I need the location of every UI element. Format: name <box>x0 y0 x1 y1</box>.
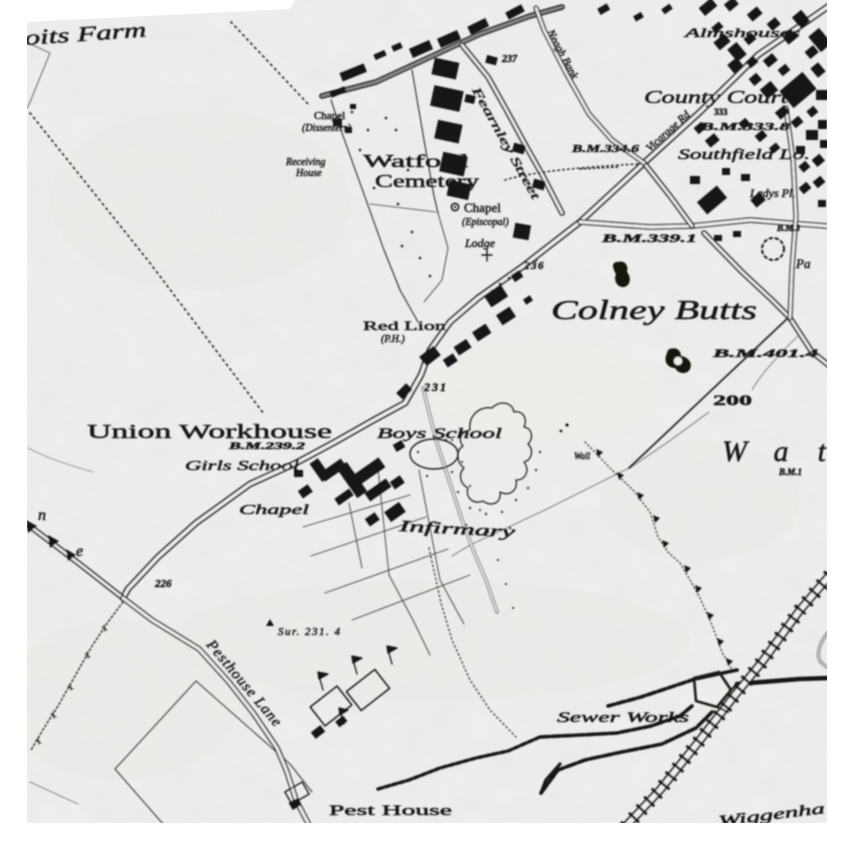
svg-text:226: 226 <box>154 578 172 590</box>
svg-text:(Episcopal): (Episcopal) <box>462 217 509 228</box>
svg-text:Lodge: Lodge <box>464 236 496 250</box>
svg-text:B.M.401.4: B.M.401.4 <box>711 346 818 360</box>
svg-text:Watford: Watford <box>363 151 468 171</box>
svg-text:Almshouses: Almshouses <box>683 25 800 40</box>
svg-text:Girls School: Girls School <box>185 459 299 474</box>
svg-text:WATFO: WATFO <box>200 189 429 234</box>
svg-text:Chapel: Chapel <box>314 110 345 122</box>
svg-text:(P.H.): (P.H.) <box>381 334 405 345</box>
svg-text:Sewer Works: Sewer Works <box>557 710 689 726</box>
svg-text:Southfield Lo.: Southfield Lo. <box>678 147 810 163</box>
svg-text:Boys School: Boys School <box>377 426 502 442</box>
svg-text:Pest House: Pest House <box>329 803 453 819</box>
svg-text:237: 237 <box>501 54 518 65</box>
svg-text:Receiving: Receiving <box>285 157 325 168</box>
svg-text:Ladys Pl.: Ladys Pl. <box>749 186 795 200</box>
svg-text:B.M.339.1: B.M.339.1 <box>600 231 697 245</box>
svg-text:Sur. 231. 4: Sur. 231. 4 <box>278 626 342 638</box>
svg-text:e: e <box>76 543 83 560</box>
svg-text:House: House <box>295 168 322 179</box>
svg-text:Union Workhouse: Union Workhouse <box>87 421 332 443</box>
svg-text:Wall: Wall <box>574 451 591 461</box>
svg-text:Red Lion: Red Lion <box>363 318 447 333</box>
svg-text:Pa: Pa <box>795 256 811 271</box>
svg-text:B.M.334.6: B.M.334.6 <box>571 143 640 155</box>
svg-text:200: 200 <box>713 393 752 409</box>
svg-text:Colney Butts: Colney Butts <box>551 295 757 325</box>
svg-text:B.M.239.2: B.M.239.2 <box>227 441 306 451</box>
svg-text:(Dissenters): (Dissenters) <box>302 123 352 134</box>
svg-text:Cemetery: Cemetery <box>375 171 479 191</box>
svg-text:B.M.333.8: B.M.333.8 <box>698 121 791 133</box>
svg-text:n: n <box>38 507 46 524</box>
svg-text:County Court: County Court <box>644 87 789 107</box>
svg-text:231: 231 <box>423 380 448 394</box>
svg-text:236: 236 <box>523 260 545 272</box>
svg-text:333: 333 <box>714 107 728 117</box>
svg-text:Chapel: Chapel <box>239 503 309 518</box>
svg-text:B.M.1: B.M.1 <box>778 467 802 477</box>
svg-text:Chapel: Chapel <box>464 200 501 215</box>
svg-text:B.M.3: B.M.3 <box>776 223 801 233</box>
